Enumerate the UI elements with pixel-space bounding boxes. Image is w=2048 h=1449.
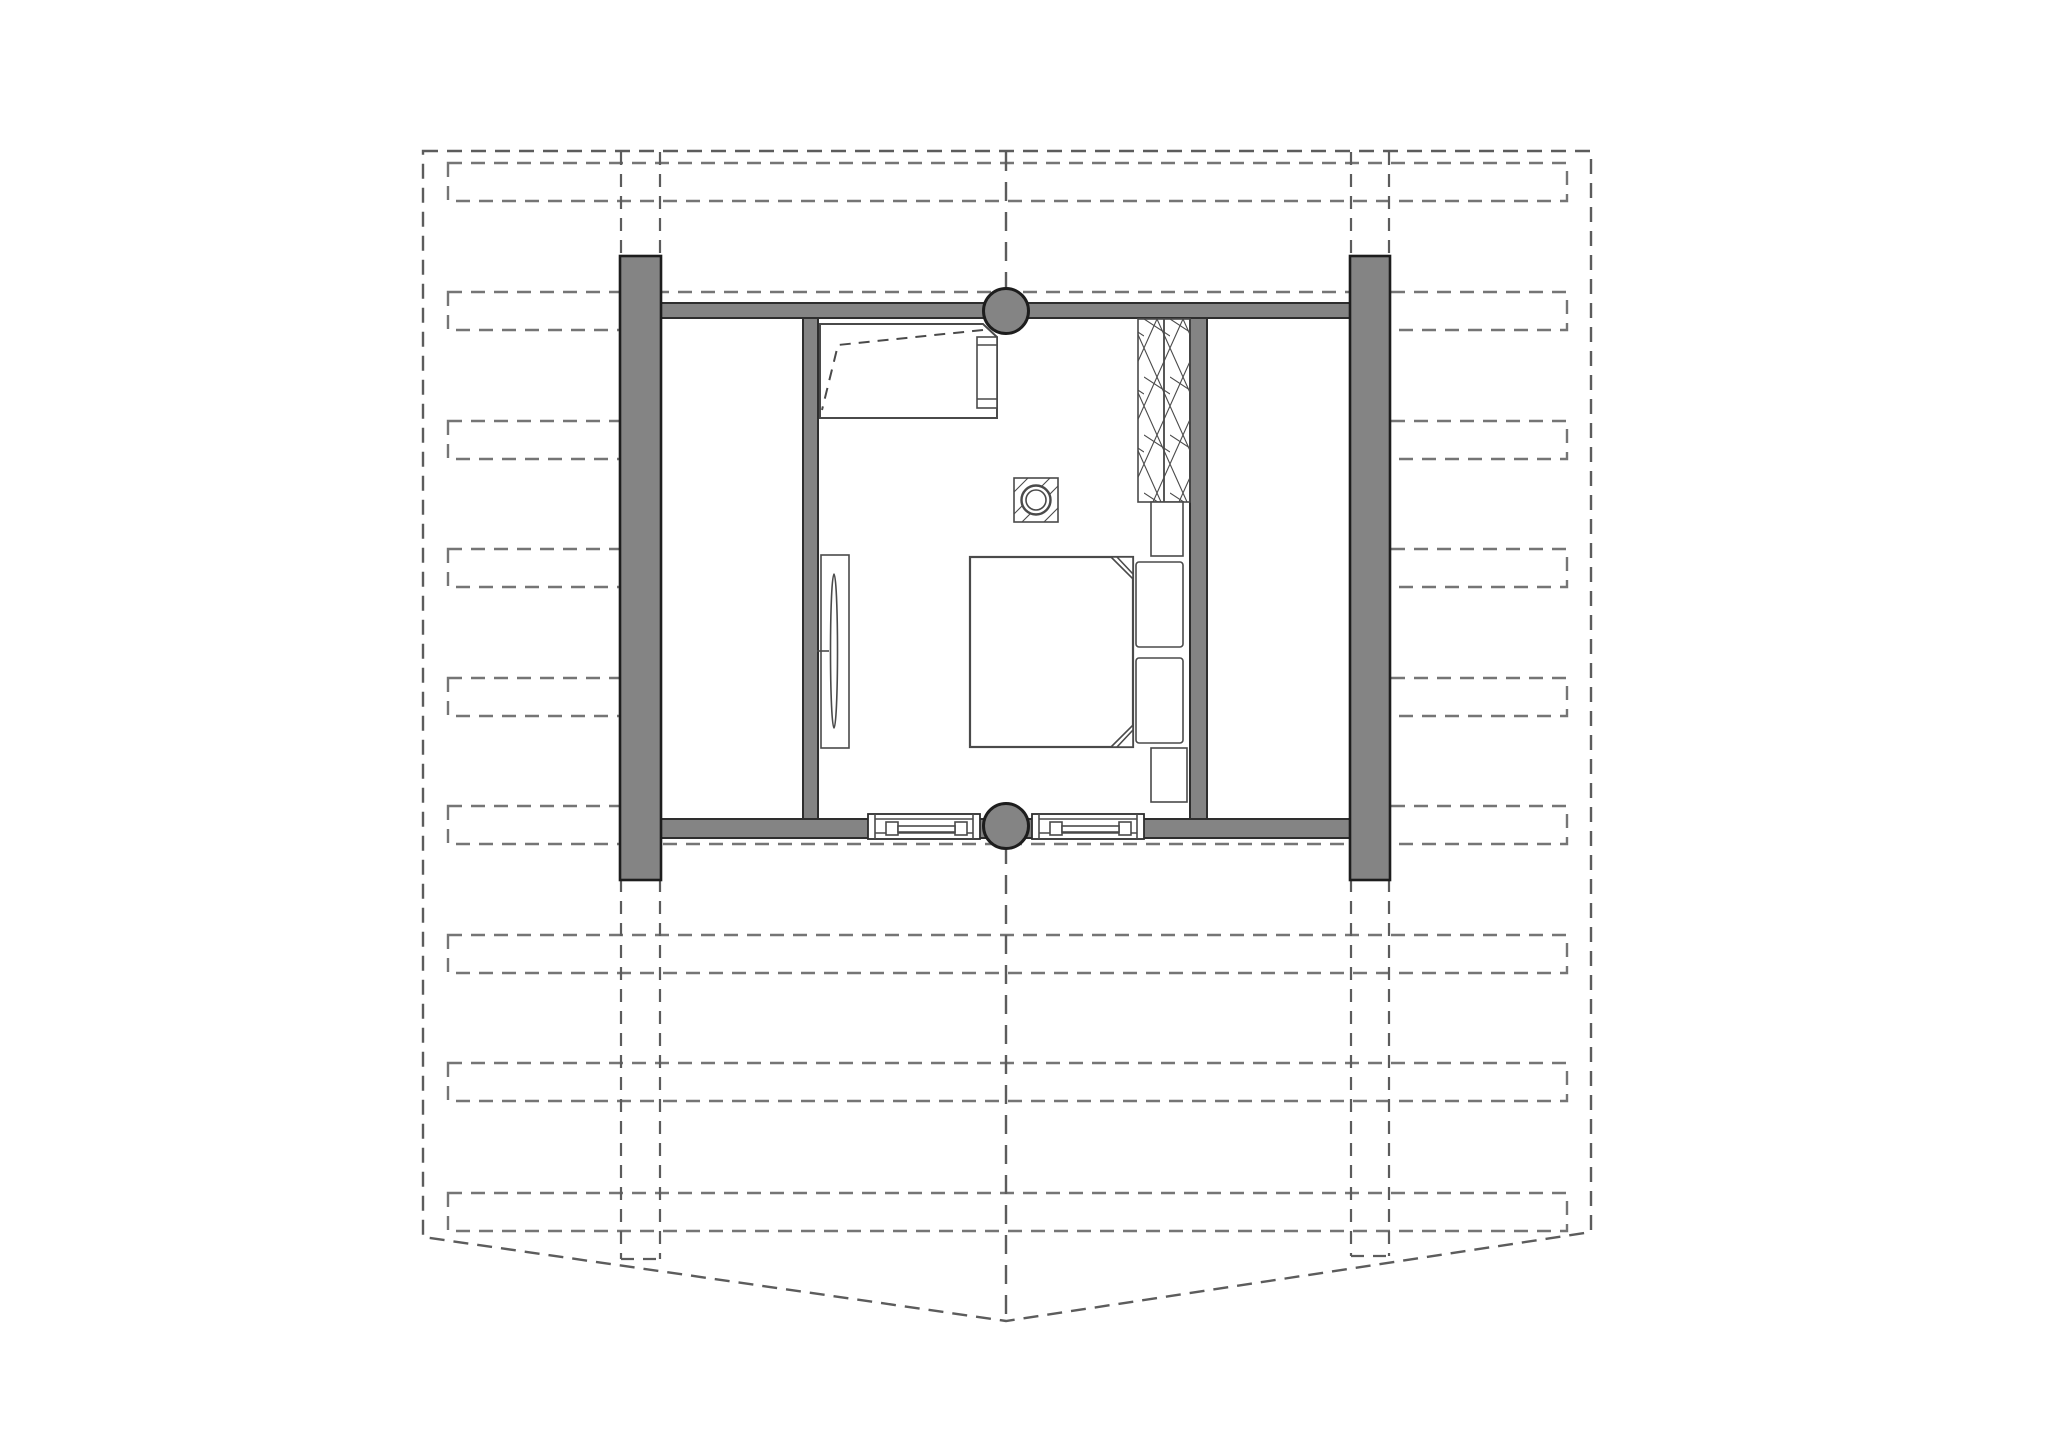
left-pillar-column bbox=[620, 256, 661, 880]
interior-wall-left bbox=[803, 318, 818, 819]
floor-plan-drawing bbox=[0, 0, 2048, 1449]
roof-joist-bar bbox=[448, 1063, 1567, 1101]
window-sash-stop bbox=[886, 822, 898, 835]
interior-wall-right bbox=[1190, 318, 1207, 819]
roof-joist-bar bbox=[448, 163, 1567, 201]
bed-mattress bbox=[970, 557, 1133, 747]
wardrobe-column bbox=[1138, 319, 1164, 502]
window-sash-stop bbox=[1119, 822, 1131, 835]
desk-side-rail bbox=[977, 337, 997, 408]
nightstand-top bbox=[1151, 502, 1183, 556]
roof-joist-bar bbox=[448, 935, 1567, 973]
chimney-flue bbox=[1014, 478, 1058, 522]
window-glazing-bar bbox=[898, 826, 955, 832]
floor-plan-stage bbox=[0, 0, 2048, 1449]
desk-cabinet bbox=[820, 324, 997, 418]
top-round-post bbox=[984, 289, 1029, 334]
window-glazing-bar bbox=[1062, 826, 1119, 832]
pillow bbox=[1136, 658, 1183, 743]
window-sash-stop bbox=[955, 822, 967, 835]
right-pillar-column bbox=[1350, 256, 1390, 880]
bottom-round-post bbox=[984, 804, 1029, 849]
wardrobe-column bbox=[1164, 319, 1190, 502]
roof-joist-bar bbox=[448, 1193, 1567, 1231]
cheval-mirror bbox=[817, 555, 849, 748]
pillow bbox=[1136, 562, 1183, 647]
window-sash-stop bbox=[1050, 822, 1062, 835]
window-right bbox=[1032, 814, 1144, 839]
nightstand-bottom bbox=[1151, 748, 1187, 802]
window-left bbox=[868, 814, 980, 839]
